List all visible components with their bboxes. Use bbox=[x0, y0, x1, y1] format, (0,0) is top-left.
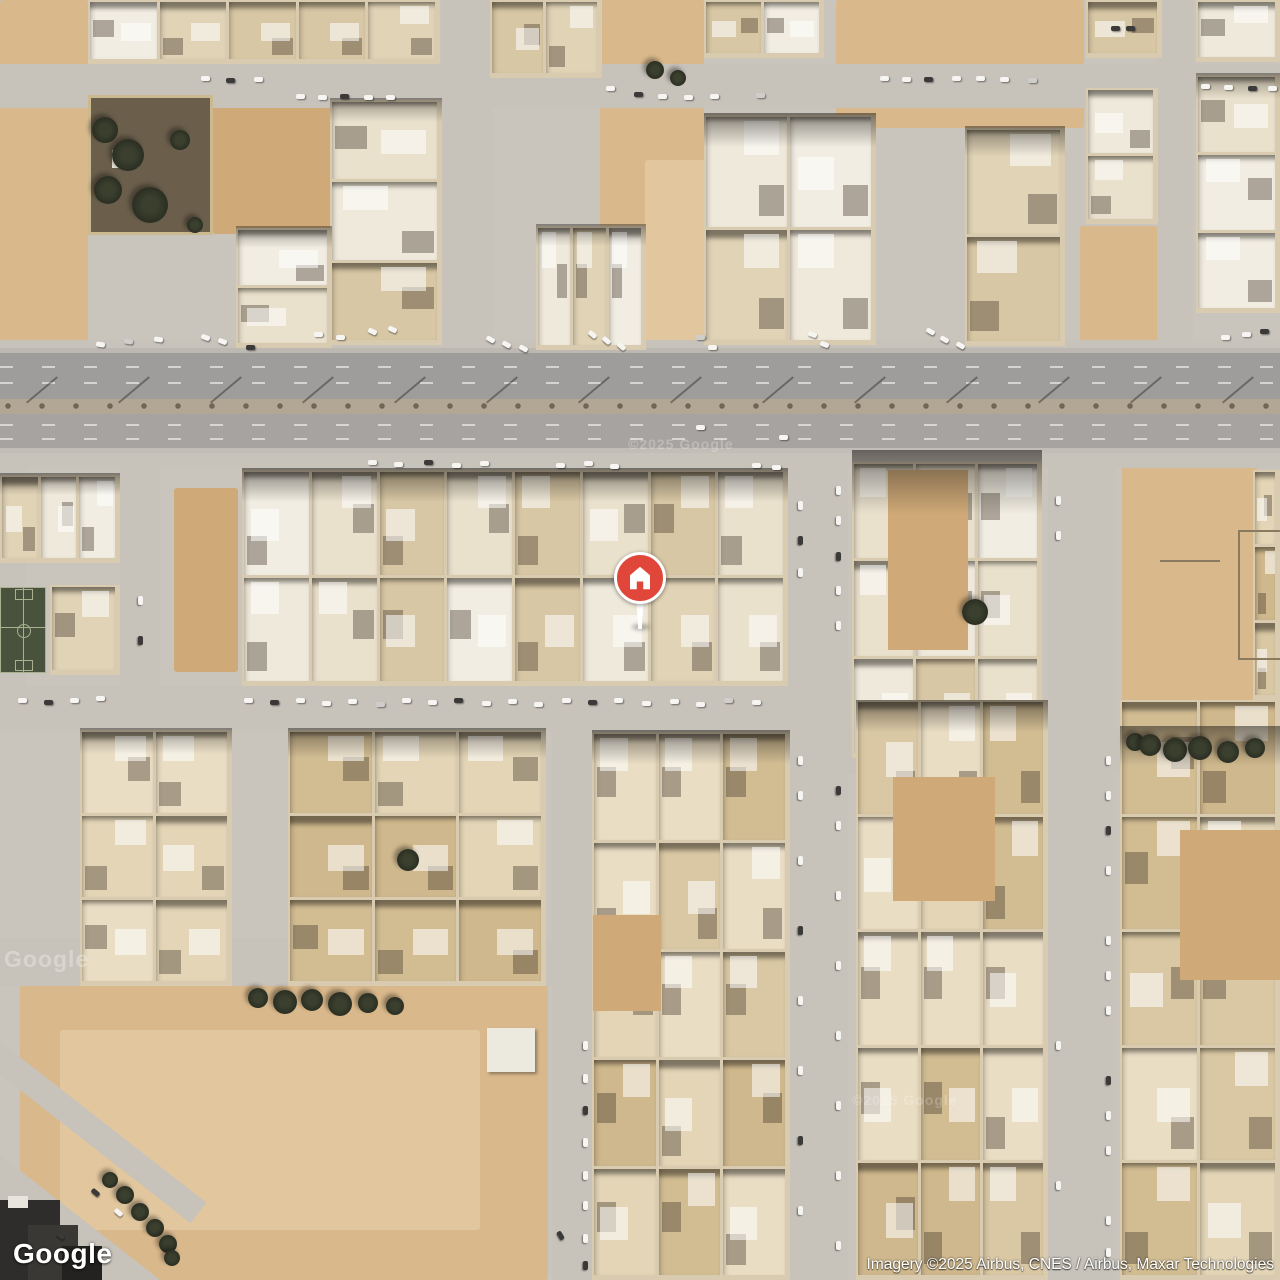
car bbox=[756, 93, 765, 98]
building bbox=[764, 2, 819, 53]
roof-structure bbox=[600, 1207, 627, 1240]
street bbox=[1048, 448, 1116, 1280]
google-logo[interactable]: Google bbox=[13, 1238, 112, 1270]
car bbox=[96, 341, 106, 347]
car bbox=[880, 76, 889, 81]
courtyard bbox=[843, 298, 868, 330]
car bbox=[798, 996, 803, 1005]
building bbox=[290, 816, 372, 897]
courtyard bbox=[624, 504, 644, 534]
car bbox=[642, 701, 651, 706]
roof-structure bbox=[864, 1088, 890, 1123]
courtyard bbox=[55, 613, 75, 637]
car bbox=[583, 1234, 588, 1243]
car bbox=[1248, 86, 1257, 91]
goal-box bbox=[15, 589, 33, 600]
car bbox=[124, 338, 134, 344]
roof-structure bbox=[949, 1088, 975, 1123]
building bbox=[1198, 233, 1275, 308]
roof-structure bbox=[1234, 6, 1268, 23]
car bbox=[296, 94, 305, 99]
car bbox=[1126, 26, 1135, 31]
car bbox=[1106, 1111, 1111, 1120]
car bbox=[226, 78, 235, 83]
roof-structure bbox=[328, 845, 364, 870]
roof-structure bbox=[752, 1064, 779, 1097]
car bbox=[1106, 756, 1111, 765]
car bbox=[270, 700, 279, 705]
building bbox=[299, 2, 366, 59]
car bbox=[394, 462, 403, 467]
street bbox=[443, 0, 493, 352]
courtyard bbox=[759, 298, 784, 330]
lane-markings bbox=[0, 366, 1280, 368]
tree bbox=[112, 139, 144, 171]
building bbox=[332, 263, 437, 340]
car bbox=[798, 791, 803, 800]
car bbox=[154, 336, 164, 342]
car bbox=[836, 621, 841, 630]
courtyard bbox=[662, 984, 681, 1014]
car bbox=[798, 1136, 803, 1145]
roof-structure bbox=[949, 1167, 975, 1202]
car bbox=[424, 460, 433, 465]
tree bbox=[132, 187, 168, 223]
roof-structure bbox=[478, 615, 506, 647]
building bbox=[1122, 1048, 1197, 1160]
tree bbox=[397, 849, 419, 871]
courtyard bbox=[1249, 1117, 1272, 1149]
courtyard bbox=[378, 950, 403, 974]
car bbox=[836, 1171, 841, 1180]
car bbox=[925, 327, 935, 336]
lot-wall bbox=[1238, 530, 1280, 532]
roof-structure bbox=[886, 742, 912, 777]
courtyard bbox=[1201, 19, 1225, 35]
building bbox=[858, 932, 918, 1044]
car bbox=[710, 94, 719, 99]
courtyard bbox=[85, 925, 107, 949]
courtyard bbox=[247, 642, 267, 672]
building bbox=[594, 1060, 656, 1166]
tree bbox=[102, 1172, 118, 1188]
roof-structure bbox=[1235, 1052, 1268, 1087]
car bbox=[1106, 1146, 1111, 1155]
building bbox=[1088, 90, 1153, 153]
car bbox=[658, 94, 667, 99]
courtyard bbox=[1201, 100, 1225, 122]
roof-structure bbox=[189, 929, 220, 954]
tree bbox=[94, 176, 122, 204]
goal-box bbox=[15, 660, 33, 671]
roof-structure bbox=[1265, 551, 1275, 574]
building bbox=[723, 1169, 785, 1275]
building bbox=[312, 578, 377, 681]
car bbox=[1224, 85, 1233, 90]
roof-structure bbox=[115, 820, 146, 845]
car bbox=[798, 856, 803, 865]
car bbox=[924, 77, 933, 82]
car bbox=[724, 698, 733, 703]
courtyard bbox=[450, 610, 470, 640]
courtyard bbox=[1132, 18, 1154, 33]
car bbox=[201, 76, 210, 81]
courtyard bbox=[1091, 196, 1111, 214]
car bbox=[1056, 1041, 1061, 1050]
courtyard bbox=[335, 126, 367, 148]
roof-structure bbox=[688, 881, 715, 914]
roof-structure bbox=[984, 595, 1010, 624]
street bbox=[120, 448, 160, 690]
roof-structure bbox=[1095, 113, 1124, 133]
building bbox=[546, 2, 597, 73]
car bbox=[836, 552, 841, 561]
tree bbox=[131, 1203, 149, 1221]
tree bbox=[273, 990, 297, 1014]
vacant-lot bbox=[593, 915, 661, 1011]
roof-structure bbox=[386, 615, 414, 647]
roof-structure bbox=[163, 845, 194, 870]
courtyard bbox=[612, 264, 623, 298]
roof-structure bbox=[381, 130, 426, 154]
car bbox=[1106, 866, 1111, 875]
car bbox=[634, 92, 643, 97]
roof-structure bbox=[927, 936, 953, 971]
building-shadow bbox=[856, 700, 1048, 732]
building bbox=[967, 237, 1060, 341]
car bbox=[798, 536, 803, 545]
tree bbox=[116, 1186, 134, 1204]
car bbox=[772, 465, 781, 470]
courtyard bbox=[741, 18, 758, 33]
courtyard bbox=[557, 264, 568, 298]
courtyard bbox=[411, 38, 432, 55]
roof-structure bbox=[688, 1173, 715, 1206]
tree bbox=[1139, 734, 1161, 756]
roof-structure bbox=[990, 1167, 1016, 1202]
car bbox=[1268, 86, 1277, 91]
tree bbox=[670, 70, 686, 86]
courtyard bbox=[378, 782, 403, 806]
car bbox=[1242, 332, 1251, 337]
car bbox=[1056, 531, 1061, 540]
car bbox=[18, 698, 27, 703]
building bbox=[82, 816, 153, 897]
car bbox=[402, 698, 411, 703]
tree bbox=[1163, 738, 1187, 762]
courtyard bbox=[986, 1117, 1005, 1149]
tree bbox=[358, 993, 378, 1013]
roof-structure bbox=[1157, 1088, 1190, 1123]
car bbox=[1111, 26, 1120, 31]
tree bbox=[170, 130, 190, 150]
courtyard bbox=[1021, 771, 1040, 803]
car bbox=[386, 95, 395, 100]
courtyard bbox=[518, 642, 538, 672]
street bbox=[552, 728, 592, 1280]
building bbox=[1198, 2, 1275, 57]
building bbox=[380, 578, 445, 681]
car bbox=[583, 1138, 588, 1147]
sand-patch bbox=[213, 92, 333, 234]
roof-structure bbox=[1208, 1203, 1241, 1238]
building bbox=[244, 578, 309, 681]
courtyard bbox=[924, 1082, 943, 1114]
roof-structure bbox=[1234, 104, 1268, 127]
building bbox=[659, 843, 721, 949]
building-shadow bbox=[80, 728, 232, 754]
car bbox=[976, 76, 985, 81]
courtyard bbox=[23, 527, 35, 551]
sand-patch bbox=[1080, 226, 1158, 348]
car bbox=[562, 698, 571, 703]
roof-structure bbox=[790, 21, 814, 37]
car bbox=[246, 345, 255, 350]
building bbox=[368, 2, 435, 59]
roof-structure bbox=[1095, 160, 1124, 180]
building-shadow bbox=[0, 473, 120, 495]
car bbox=[779, 435, 788, 440]
building bbox=[718, 578, 783, 681]
car bbox=[44, 700, 53, 705]
tree bbox=[92, 117, 118, 143]
car bbox=[244, 698, 253, 703]
roof-structure bbox=[1257, 649, 1267, 672]
car bbox=[583, 1201, 588, 1210]
car bbox=[340, 94, 349, 99]
roof-structure bbox=[497, 929, 533, 954]
building bbox=[375, 900, 457, 981]
building bbox=[1088, 2, 1157, 53]
car bbox=[610, 464, 619, 469]
car bbox=[1056, 1181, 1061, 1190]
vacant-lot bbox=[893, 777, 995, 901]
roof-structure bbox=[191, 23, 220, 41]
car bbox=[752, 700, 761, 705]
car bbox=[534, 702, 543, 707]
car bbox=[428, 700, 437, 705]
roof-structure bbox=[1012, 1088, 1038, 1123]
tree bbox=[146, 1219, 164, 1237]
car bbox=[1028, 78, 1037, 83]
building bbox=[459, 900, 541, 981]
roof-structure bbox=[1206, 237, 1240, 260]
courtyard bbox=[726, 984, 745, 1014]
car bbox=[1056, 496, 1061, 505]
car bbox=[798, 756, 803, 765]
courtyard bbox=[597, 767, 616, 797]
courtyard bbox=[1203, 771, 1226, 803]
building-shadow bbox=[288, 728, 546, 758]
building bbox=[1200, 1048, 1275, 1160]
roof-structure bbox=[545, 615, 573, 647]
car bbox=[1221, 335, 1230, 340]
car bbox=[670, 699, 679, 704]
roof-structure bbox=[6, 506, 22, 531]
sand-patch bbox=[1122, 455, 1257, 705]
roof-structure bbox=[1130, 973, 1163, 1008]
courtyard bbox=[93, 20, 114, 37]
car bbox=[696, 335, 705, 340]
car bbox=[836, 961, 841, 970]
tree bbox=[187, 217, 203, 233]
car bbox=[606, 86, 615, 91]
roof-structure bbox=[860, 565, 886, 594]
building-shadow bbox=[236, 226, 332, 248]
car bbox=[836, 516, 841, 525]
roof-structure bbox=[328, 929, 364, 954]
courtyard bbox=[353, 504, 373, 534]
courtyard bbox=[763, 1093, 782, 1123]
street bbox=[0, 686, 850, 732]
imagery-attribution: Imagery ©2025 Airbus, CNES / Airbus, Max… bbox=[867, 1256, 1274, 1274]
building bbox=[156, 816, 227, 897]
courtyard bbox=[513, 757, 538, 781]
roof-structure bbox=[681, 615, 709, 647]
car bbox=[614, 698, 623, 703]
roof-structure bbox=[864, 936, 890, 971]
car bbox=[508, 699, 517, 704]
courtyard bbox=[1130, 130, 1150, 148]
building bbox=[515, 578, 580, 681]
car bbox=[296, 698, 305, 703]
courtyard bbox=[353, 610, 373, 640]
roof-structure bbox=[977, 241, 1017, 273]
car bbox=[1106, 826, 1111, 835]
roof-structure bbox=[497, 820, 533, 845]
car bbox=[798, 1206, 803, 1215]
building bbox=[790, 230, 871, 340]
car bbox=[836, 1101, 841, 1110]
corner-structure bbox=[8, 1196, 28, 1208]
tree bbox=[164, 1250, 180, 1266]
courtyard bbox=[1248, 178, 1272, 200]
building bbox=[459, 816, 541, 897]
car bbox=[752, 463, 761, 468]
car bbox=[1106, 1216, 1111, 1225]
building bbox=[332, 182, 437, 259]
car bbox=[584, 461, 593, 466]
courtyard bbox=[163, 38, 184, 55]
courtyard bbox=[662, 767, 681, 797]
building bbox=[82, 900, 153, 981]
car bbox=[583, 1041, 588, 1050]
building bbox=[52, 587, 115, 670]
courtyard bbox=[159, 950, 181, 974]
roof-structure bbox=[990, 973, 1016, 1008]
tree bbox=[248, 988, 268, 1008]
sand-patch bbox=[0, 0, 88, 345]
courtyard bbox=[767, 18, 784, 33]
courtyard bbox=[159, 782, 181, 806]
car bbox=[314, 332, 323, 337]
roof-structure bbox=[730, 1207, 757, 1240]
car bbox=[696, 702, 705, 707]
courtyard bbox=[721, 536, 741, 566]
roof-structure bbox=[665, 956, 692, 989]
roof-structure bbox=[82, 591, 110, 617]
roof-structure bbox=[613, 615, 641, 647]
roof-structure bbox=[864, 858, 890, 893]
building bbox=[1088, 156, 1153, 219]
car bbox=[1106, 1076, 1111, 1085]
courtyard bbox=[726, 767, 745, 797]
tree bbox=[328, 992, 352, 1016]
street bbox=[788, 448, 848, 1280]
car bbox=[254, 77, 263, 82]
car bbox=[348, 699, 357, 704]
vacant-lot bbox=[1180, 830, 1280, 980]
roof-structure bbox=[261, 23, 290, 41]
car bbox=[798, 1066, 803, 1075]
car bbox=[583, 1171, 588, 1180]
courtyard bbox=[293, 925, 318, 949]
tree bbox=[1188, 736, 1212, 760]
car bbox=[583, 1106, 588, 1115]
building bbox=[594, 1169, 656, 1275]
soccer-field bbox=[0, 587, 46, 673]
car bbox=[138, 596, 143, 605]
car bbox=[836, 821, 841, 830]
car bbox=[952, 76, 961, 81]
courtyard bbox=[513, 866, 538, 890]
building bbox=[706, 230, 787, 340]
lane-markings bbox=[0, 438, 1280, 440]
car bbox=[364, 95, 373, 100]
car bbox=[1106, 936, 1111, 945]
car bbox=[454, 698, 463, 703]
roof-structure bbox=[623, 881, 650, 914]
car bbox=[836, 486, 841, 495]
building bbox=[659, 1169, 721, 1275]
car bbox=[70, 698, 79, 703]
courtyard bbox=[518, 536, 538, 566]
car bbox=[480, 461, 489, 466]
roof-structure bbox=[115, 929, 146, 954]
building-shadow bbox=[965, 126, 1065, 156]
building bbox=[659, 1060, 721, 1166]
roof-structure bbox=[1257, 498, 1267, 521]
roof-structure bbox=[58, 506, 74, 531]
courtyard bbox=[1028, 194, 1057, 224]
roof-structure bbox=[665, 1098, 692, 1131]
courtyard bbox=[549, 46, 565, 67]
building bbox=[1255, 472, 1275, 544]
building bbox=[156, 900, 227, 981]
car bbox=[588, 700, 597, 705]
courtyard bbox=[654, 504, 674, 534]
courtyard bbox=[202, 866, 224, 890]
car bbox=[798, 501, 803, 510]
roof-structure bbox=[330, 23, 359, 41]
roof-structure bbox=[623, 1064, 650, 1097]
building bbox=[229, 2, 296, 59]
car bbox=[684, 95, 693, 100]
courtyard bbox=[924, 967, 943, 999]
car bbox=[1106, 791, 1111, 800]
courtyard bbox=[1258, 593, 1266, 614]
roof-structure bbox=[798, 234, 833, 268]
map-canvas[interactable] bbox=[0, 0, 1280, 1280]
courtyard bbox=[1125, 852, 1148, 884]
car bbox=[836, 786, 841, 795]
building bbox=[659, 952, 721, 1058]
car bbox=[1106, 971, 1111, 980]
car bbox=[556, 463, 565, 468]
roof-structure bbox=[712, 21, 736, 37]
car bbox=[376, 702, 385, 707]
building bbox=[921, 1048, 981, 1160]
